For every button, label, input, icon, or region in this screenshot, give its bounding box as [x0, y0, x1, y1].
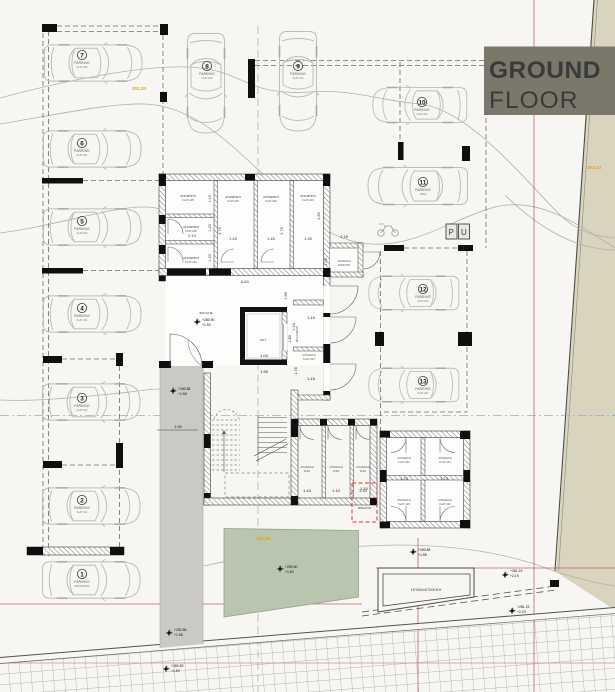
svg-text:+280.88: +280.88: [178, 387, 190, 391]
svg-text:PARKING: PARKING: [74, 314, 90, 318]
svg-text:1.15: 1.15: [208, 195, 212, 202]
svg-text:2.10: 2.10: [188, 233, 197, 238]
svg-text:1.05: 1.05: [324, 258, 328, 265]
svg-text:FLAT-204: FLAT-204: [418, 392, 429, 395]
svg-text:ΑΠΟΘΗΚΗ: ΑΠΟΘΗΚΗ: [300, 194, 316, 198]
svg-text:FLAT-202: FLAT-202: [77, 232, 88, 235]
svg-text:1.10: 1.10: [292, 323, 296, 330]
svg-text:+280.90: +280.90: [202, 318, 214, 322]
svg-text:13: 13: [419, 378, 427, 385]
svg-text:FLAT-104: FLAT-104: [417, 113, 428, 116]
svg-text:2.60: 2.60: [317, 212, 321, 219]
svg-text:+1.90: +1.90: [202, 323, 211, 327]
svg-text:1.15: 1.15: [307, 376, 316, 381]
svg-text:FLAT-103: FLAT-103: [398, 502, 410, 506]
svg-text:FLAT-101: FLAT-101: [77, 511, 88, 514]
svg-text:ΚΟΙΝ: ΚΟΙΝ: [333, 469, 340, 473]
svg-text:PARKING: PARKING: [415, 188, 431, 192]
svg-text:FLAT-001: FLAT-001: [77, 154, 88, 157]
svg-text:3.75: 3.75: [218, 227, 222, 234]
svg-text:1.10: 1.10: [332, 488, 341, 493]
svg-text:+280.83: +280.83: [171, 664, 183, 668]
svg-text:ΑΠΟΘΗΚΗ: ΑΠΟΘΗΚΗ: [263, 195, 279, 199]
svg-text:ΦΡΕΑΤΙΟ: ΦΡΕΑΤΙΟ: [358, 506, 372, 510]
svg-text:PARKING: PARKING: [74, 227, 90, 231]
svg-text:+1.88: +1.88: [178, 392, 187, 396]
svg-text:1.15: 1.15: [340, 234, 349, 239]
svg-text:12: 12: [419, 286, 427, 293]
svg-text:U: U: [461, 228, 467, 237]
svg-text:FLAT-201: FLAT-201: [185, 260, 197, 264]
svg-text:P: P: [449, 228, 454, 237]
svg-text:+281.23: +281.23: [517, 605, 529, 609]
svg-text:LIFT: LIFT: [260, 338, 266, 342]
svg-text:FLAT-003: FLAT-003: [202, 77, 213, 80]
svg-text:PARKING: PARKING: [199, 72, 215, 76]
svg-text:ΦΟΥΑΓΙΕ: ΦΟΥΑΓΙΕ: [199, 311, 212, 315]
svg-text:283.23: 283.23: [587, 165, 601, 170]
svg-text:1.45: 1.45: [229, 236, 238, 241]
svg-text:1.50: 1.50: [284, 292, 288, 299]
svg-text:281.68: 281.68: [256, 536, 270, 541]
svg-text:1.76: 1.76: [294, 367, 298, 374]
svg-text:PARKING: PARKING: [415, 295, 431, 299]
svg-text:FLAT-104: FLAT-104: [439, 460, 451, 464]
svg-text:ΑΠΟΘΗΚΗ: ΑΠΟΘΗΚΗ: [183, 225, 199, 229]
svg-text:ΚΟΙΝΟΧΡ.: ΚΟΙΝΟΧΡ.: [338, 263, 351, 267]
svg-text:1.95: 1.95: [260, 369, 269, 374]
svg-text:PARKING: PARKING: [414, 108, 430, 112]
svg-text:PARKING: PARKING: [415, 387, 431, 391]
svg-text:PARKING: PARKING: [74, 61, 90, 65]
svg-text:ΑΠΟΘΗΚΗ: ΑΠΟΘΗΚΗ: [180, 194, 196, 198]
svg-text:1.20: 1.20: [208, 254, 212, 261]
svg-text:7: 7: [80, 52, 84, 59]
svg-text:ΑΠΟΘΗΚΗ: ΑΠΟΘΗΚΗ: [438, 498, 452, 502]
svg-text:1.00: 1.00: [260, 353, 269, 358]
svg-text:1: 1: [80, 571, 84, 578]
svg-text:+2.23: +2.23: [517, 610, 526, 614]
svg-text:ΑΠΟΘΗΚΗ: ΑΠΟΘΗΚΗ: [356, 465, 370, 469]
svg-text:ΚΟΙΝ: ΚΟΙΝ: [304, 469, 311, 473]
svg-text:+2.19: +2.19: [510, 574, 519, 578]
svg-text:GROUND: GROUND: [489, 57, 601, 84]
svg-text:4: 4: [80, 305, 84, 312]
svg-text:1.45: 1.45: [267, 236, 276, 241]
svg-text:FLAT-102: FLAT-102: [439, 502, 451, 506]
svg-text:1.73: 1.73: [440, 476, 449, 481]
svg-text:8: 8: [205, 63, 209, 70]
svg-text:+1.88: +1.88: [418, 553, 427, 557]
svg-text:PARKING: PARKING: [290, 72, 306, 76]
svg-text:FLAT-204: FLAT-204: [398, 460, 410, 464]
svg-text:ΑΠΟΘΗΚΗ: ΑΠΟΘΗΚΗ: [183, 256, 199, 260]
svg-text:283.20: 283.20: [132, 86, 146, 91]
svg-text:ΑΠΟΘΗΚΗ: ΑΠΟΘΗΚΗ: [225, 195, 241, 199]
svg-text:1.80: 1.80: [288, 335, 292, 342]
svg-text:FLAT-203: FLAT-203: [227, 199, 239, 203]
svg-text:+1.68: +1.68: [174, 633, 183, 637]
svg-text:FLOOR: FLOOR: [489, 87, 578, 114]
svg-text:6: 6: [80, 140, 84, 147]
svg-text:ΑΠΟΘΗΚΗ: ΑΠΟΘΗΚΗ: [329, 465, 343, 469]
svg-text:1.10: 1.10: [303, 488, 312, 493]
svg-text:1.15: 1.15: [307, 315, 316, 320]
svg-text:PARKING: PARKING: [74, 149, 90, 153]
svg-text:1.10: 1.10: [360, 486, 369, 491]
svg-text:3: 3: [80, 395, 84, 402]
svg-text:ΣΚΥΒΑΛΑΠΟΘΗΚΗ: ΣΚΥΒΑΛΑΠΟΘΗΚΗ: [411, 588, 442, 592]
svg-text:ΑΠΟΘΗΚΗ: ΑΠΟΘΗΚΗ: [300, 465, 314, 469]
svg-text:FLAT-004: FLAT-004: [303, 357, 315, 361]
svg-text:+1.83: +1.83: [171, 669, 180, 673]
svg-text:3.75: 3.75: [280, 227, 284, 234]
svg-text:2: 2: [80, 497, 84, 504]
svg-text:AREA: AREA: [420, 193, 427, 196]
svg-text:1.30: 1.30: [304, 236, 313, 241]
svg-text:ΑΠΟΘΗΚΗ: ΑΠΟΘΗΚΗ: [438, 456, 452, 460]
svg-text:11: 11: [420, 179, 427, 186]
svg-text:6.60: 6.60: [241, 279, 250, 284]
svg-text:PARKING: PARKING: [74, 580, 90, 584]
svg-text:1.73: 1.73: [400, 476, 409, 481]
svg-text:FLAT-002: FLAT-002: [77, 66, 88, 69]
svg-text:9: 9: [296, 63, 300, 70]
svg-text:ΑΠΟΘΗΚΗ: ΑΠΟΘΗΚΗ: [397, 456, 411, 460]
svg-text:1.90: 1.90: [174, 424, 183, 429]
svg-text:ΑΠΟΘΗΚΗ: ΑΠΟΘΗΚΗ: [397, 498, 411, 502]
svg-text:PARKING: PARKING: [74, 506, 90, 510]
svg-text:FLAT-202: FLAT-202: [265, 199, 277, 203]
svg-text:+281.19: +281.19: [510, 569, 522, 573]
svg-text:10: 10: [418, 99, 426, 106]
svg-text:FLAT-103: FLAT-103: [293, 77, 304, 80]
svg-text:+280.80: +280.80: [285, 565, 297, 569]
svg-text:FLAT-105: FLAT-105: [182, 198, 194, 202]
svg-text:ΑΠΟΘΗΚΗ: ΑΠΟΘΗΚΗ: [302, 353, 316, 357]
svg-text:5: 5: [80, 218, 84, 225]
svg-text:ΕΠΙΣΚΕΠΤΕΣ: ΕΠΙΣΚΕΠΤΕΣ: [74, 585, 90, 588]
svg-text:FLAT-203: FLAT-203: [418, 300, 429, 303]
svg-text:PARKING: PARKING: [74, 404, 90, 408]
svg-text:ΚΟΙΝ: ΚΟΙΝ: [360, 469, 367, 473]
svg-text:FLAT-102: FLAT-102: [77, 409, 88, 412]
svg-text:+1.80: +1.80: [285, 570, 294, 574]
svg-text:+280.88: +280.88: [418, 548, 430, 552]
svg-text:ΑΠΟΘΗΚΗ: ΑΠΟΘΗΚΗ: [337, 259, 351, 263]
svg-text:+280.68: +280.68: [174, 628, 186, 632]
svg-text:1.20: 1.20: [208, 224, 212, 231]
svg-text:FLAT-206: FLAT-206: [302, 198, 314, 202]
svg-text:FLAT-201: FLAT-201: [77, 319, 88, 322]
